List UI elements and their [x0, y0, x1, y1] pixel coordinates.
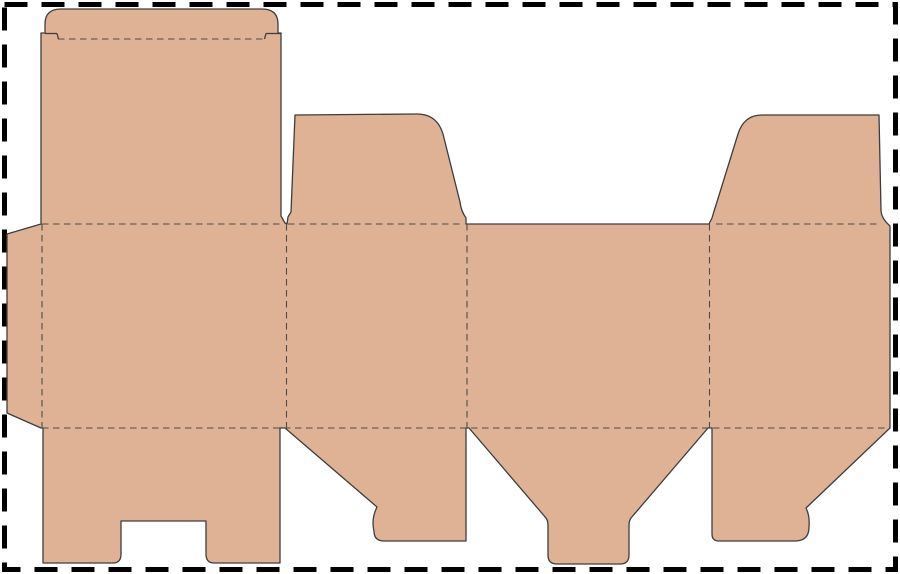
box-dieline-diagram	[0, 0, 900, 574]
dieline-page	[0, 0, 900, 574]
